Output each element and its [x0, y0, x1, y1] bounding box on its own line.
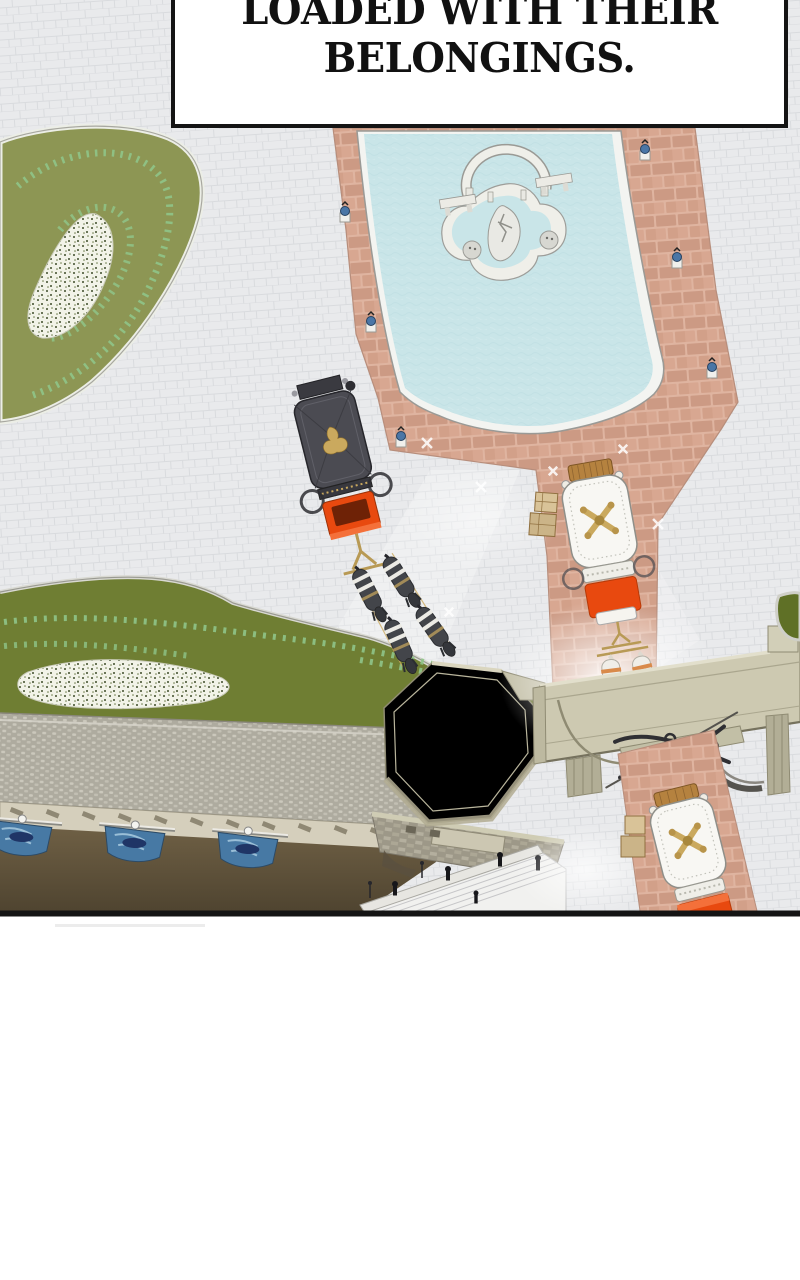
luggage-crates	[621, 816, 645, 857]
fountain-pool	[357, 131, 664, 434]
webtoon-page: LOADED WITH THEIR BELONGINGS.	[0, 0, 800, 1280]
panel-bottom-border	[0, 911, 800, 917]
caption-line-2: BELONGINGS.	[193, 34, 765, 82]
page-smudge	[55, 924, 205, 927]
caption-line-1: LOADED WITH THEIR	[193, 0, 765, 34]
gate-pillar-left	[566, 755, 602, 797]
aerial-courtyard-scene	[0, 0, 800, 1280]
gate-pillar-right	[766, 714, 790, 795]
caption-box: LOADED WITH THEIR BELONGINGS.	[171, 0, 788, 128]
